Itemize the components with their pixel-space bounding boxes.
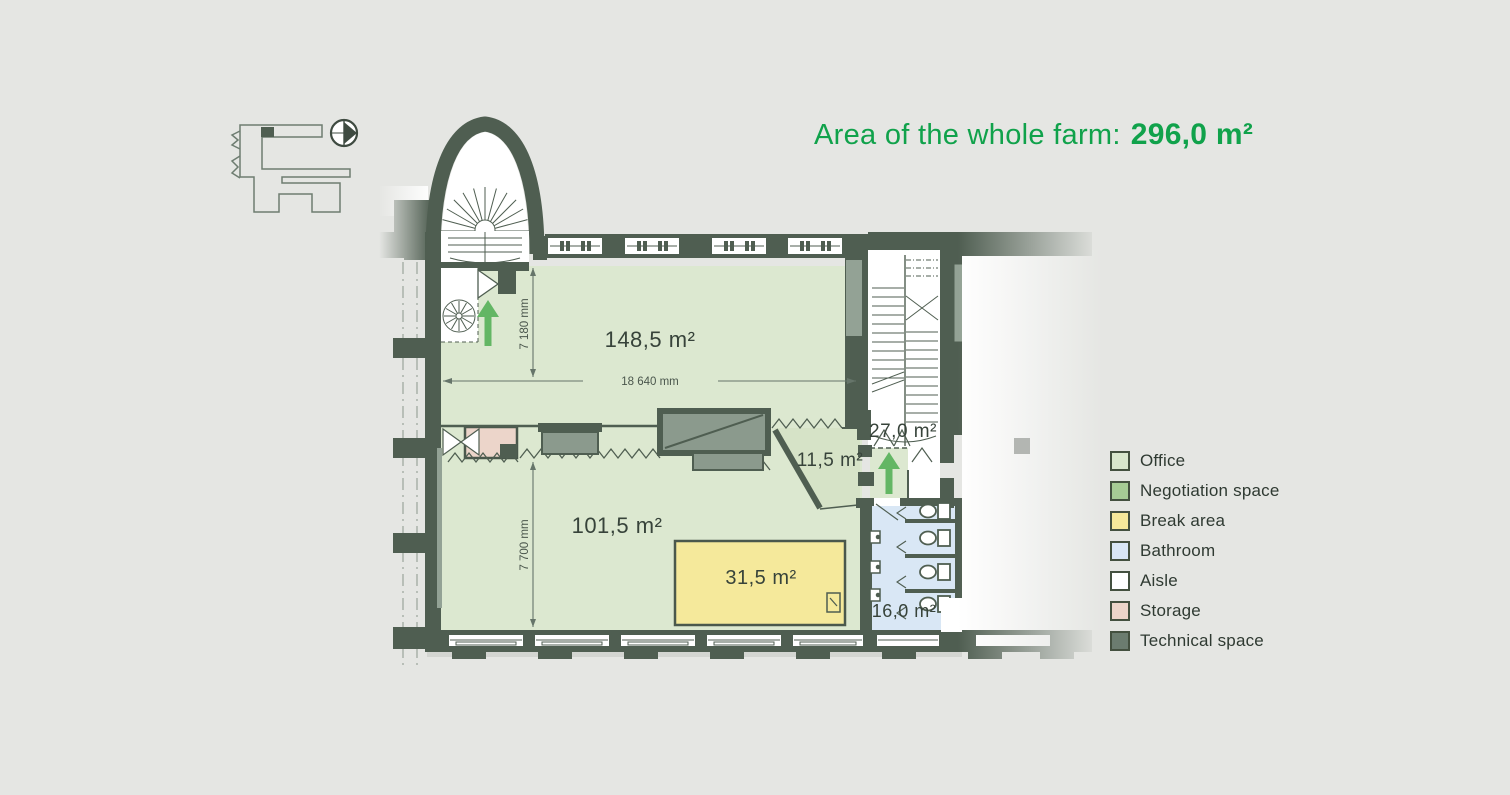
legend-label-aisle: Aisle [1140,571,1178,591]
spiral-stair [443,300,475,332]
room-label-negotiation: 11,5 m² [797,450,864,471]
legend-label-storage: Storage [1140,601,1201,621]
legend-item-office: Office [1110,446,1280,476]
legend-label-technical-space: Technical space [1140,631,1264,651]
minimap [232,120,357,212]
legend-item-technical-space: Technical space [1110,626,1280,656]
legend-swatch-break-area [1110,511,1130,531]
legend-label-break-area: Break area [1140,511,1225,531]
legend-swatch-office [1110,451,1130,471]
legend-item-negotiation-space: Negotiation space [1110,476,1280,506]
dimension-width-bottom: 7 700 mm [519,519,531,570]
legend-swatch-technical-space [1110,631,1130,651]
legend-item-break-area: Break area [1110,506,1280,536]
page-title-text: Area of the whole farm: [814,119,1121,152]
room-label-break-area: 31,5 m² [725,567,796,589]
room-label-bathroom: 16,0 m² [872,601,937,621]
legend-item-bathroom: Bathroom [1110,536,1280,566]
north-compass-icon [331,120,357,146]
room-label-office-lower: 101,5 m² [572,513,663,538]
floor-plan-drawing: 7 180 mm 18 640 mm 7 700 mm 148,5 m² 101… [0,0,1510,795]
total-area-value: 296,0 m² [1131,118,1253,152]
legend-swatch-aisle [1110,571,1130,591]
dimension-length-main: 18 640 mm [621,376,679,388]
legend-swatch-negotiation-space [1110,481,1130,501]
legend-item-aisle: Aisle [1110,566,1280,596]
floor-plan-page: 7 180 mm 18 640 mm 7 700 mm 148,5 m² 101… [0,0,1510,795]
room-aisle-stairwell [868,248,940,448]
room-aisle-corridor [908,448,940,506]
legend-item-storage: Storage [1110,596,1280,626]
minimap-left-notches [232,131,240,178]
dimension-width-top: 7 180 mm [519,298,531,349]
legend-label-bathroom: Bathroom [1140,541,1215,561]
legend-label-office: Office [1140,451,1185,471]
column-marker [1014,438,1030,454]
legend: Office Negotiation space Break area Bath… [1110,446,1280,656]
site-boundary-lines [403,262,417,668]
sink-icon [870,531,880,601]
legend-label-negotiation-space: Negotiation space [1140,481,1280,501]
page-title: Area of the whole farm: 296,0 m² [814,118,1253,152]
break-area-door [827,593,840,612]
minimap-location-marker [261,127,274,137]
legend-swatch-storage [1110,601,1130,621]
legend-swatch-bathroom [1110,541,1130,561]
room-label-office-main: 148,5 m² [605,327,696,352]
room-label-aisle: 27,0 m² [869,421,937,442]
